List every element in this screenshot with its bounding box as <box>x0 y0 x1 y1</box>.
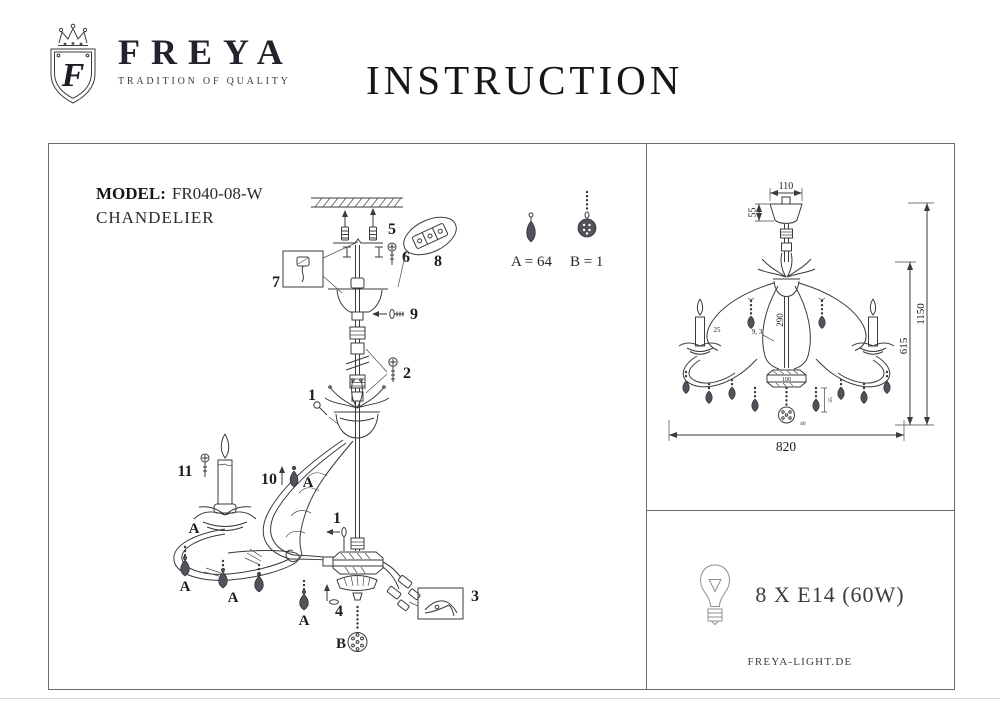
logo-letter: F <box>61 57 85 94</box>
brand-tagline: TRADITION OF QUALITY <box>118 76 294 87</box>
dim-820: 820 <box>669 420 904 454</box>
part-1-screw-top <box>314 402 338 424</box>
website: FREYA-LIGHT.DE <box>646 656 954 668</box>
crystal-label-b: B <box>336 636 346 652</box>
part-4-screw <box>324 584 339 604</box>
vine-drawing <box>286 441 353 561</box>
svg-text:615: 615 <box>898 337 910 354</box>
dim-615: 615 <box>895 262 934 425</box>
svg-text:820: 820 <box>776 439 797 454</box>
part-3-pliers-box <box>418 588 463 619</box>
freya-crown-shield-icon: F <box>38 20 108 108</box>
light-bulb-icon <box>695 562 735 628</box>
part-label-7: 7 <box>272 274 280 291</box>
dim-upper-pendants <box>748 301 825 329</box>
candle-drawing <box>194 434 256 531</box>
bulb-spec: 8 X E14 (60W) <box>755 582 904 608</box>
part-6-screw <box>388 243 396 265</box>
part-label-5: 5 <box>388 221 396 238</box>
svg-text:110: 110 <box>779 181 794 192</box>
dim-1150: 1150 <box>908 203 934 425</box>
dim-25: 25 <box>714 326 722 334</box>
crystal-counts: A = 64 B = 1 <box>511 189 603 271</box>
dim-35: 35 <box>828 397 834 403</box>
part-11-screw <box>201 454 209 477</box>
dim-canopy <box>770 197 802 223</box>
stem-segments <box>346 327 369 401</box>
dim-110: 110 <box>770 181 802 201</box>
crystal-label-a: A <box>189 521 200 537</box>
count-b: B = 1 <box>570 189 603 271</box>
crystal-label-a: A <box>180 579 191 595</box>
part-label-3: 3 <box>471 588 479 605</box>
page-bottom-edge <box>0 698 1000 699</box>
part-label-2: 2 <box>403 365 411 382</box>
brand-logo: F FREYA TRADITION OF QUALITY <box>38 20 294 108</box>
count-a: A = 64 <box>511 211 552 271</box>
brand-name: FREYA <box>118 34 294 70</box>
part-label-8: 8 <box>434 253 442 270</box>
mount-screws <box>342 208 377 240</box>
dimension-drawing: 110 55 290 9, 3 25 <box>653 174 953 466</box>
part-label-1-bottom: 1 <box>333 510 341 527</box>
crystal-label-a: A <box>228 590 239 606</box>
arm-curve-drawing <box>263 440 346 560</box>
teardrop-crystal-icon <box>522 211 540 249</box>
dim-9-3: 9, 3 <box>752 328 763 336</box>
dim-arms <box>707 283 866 369</box>
part-10-crystal <box>279 466 298 487</box>
ceiling-drawing <box>311 198 403 207</box>
count-a-label: A = 64 <box>511 254 552 271</box>
chain-ball-crystal-icon <box>576 189 598 249</box>
content-box: MODEL:FR040-08-W CHANDELIER 5 <box>48 143 955 690</box>
dim-bottom-ball <box>779 388 795 423</box>
part-2-screw <box>366 349 397 393</box>
bottom-plate-drawing <box>337 575 377 600</box>
center-bowl-drawing <box>334 412 380 438</box>
part-label-9: 9 <box>410 306 418 323</box>
part-label-10: 10 <box>261 471 277 488</box>
part-9-screw <box>372 310 404 319</box>
dim-55: 55 <box>748 204 775 221</box>
dim-290: 290 <box>775 313 785 327</box>
spec-panel: 8 X E14 (60W) FREYA-LIGHT.DE <box>646 510 954 689</box>
svg-text:55: 55 <box>748 208 759 218</box>
part-label-1-top: 1 <box>308 387 316 404</box>
mounting-bracket <box>333 239 383 257</box>
crystal-label-a: A <box>303 475 314 491</box>
svg-text:1150: 1150 <box>915 303 927 325</box>
page-title: INSTRUCTION <box>366 56 683 104</box>
dim-stem <box>758 224 815 368</box>
exploded-assembly-diagram: 5 6 8 <box>141 161 541 681</box>
count-b-label: B = 1 <box>570 254 603 271</box>
crystal-label-a: A <box>299 613 310 629</box>
part-label-4: 4 <box>335 603 343 620</box>
ball-chain-drawing <box>348 607 367 652</box>
part-label-11: 11 <box>177 463 192 480</box>
dim-100: 100 <box>782 377 791 383</box>
dim-40: 40 <box>800 421 806 427</box>
instruction-page: F FREYA TRADITION OF QUALITY INSTRUCTION… <box>0 0 1000 706</box>
dim-9-3-leader <box>763 335 774 341</box>
part-1-screw-bottom <box>326 528 346 552</box>
